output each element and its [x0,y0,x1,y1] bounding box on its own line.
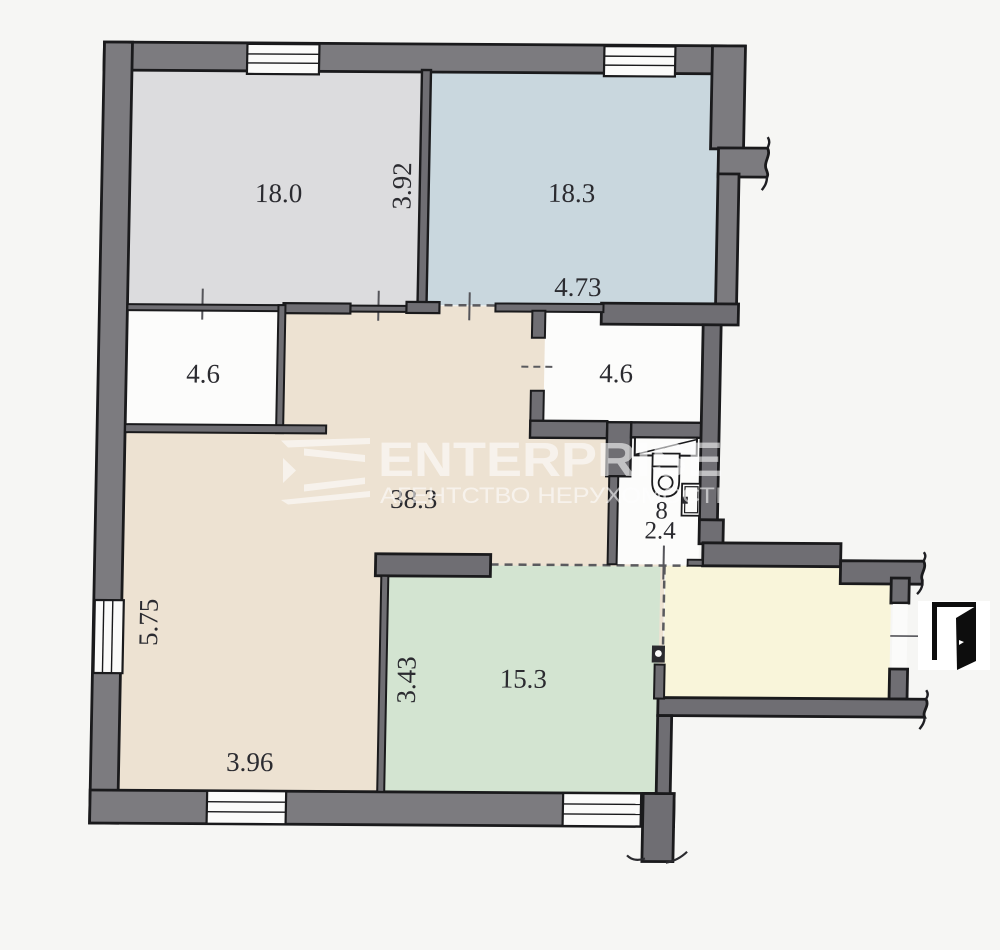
svg-text:4.6: 4.6 [599,358,633,388]
svg-text:18.0: 18.0 [255,178,303,208]
svg-text:18.3: 18.3 [548,178,596,208]
svg-text:4.73: 4.73 [554,272,602,302]
svg-text:3.92: 3.92 [386,162,417,209]
svg-text:3.96: 3.96 [226,747,274,777]
svg-text:3.43: 3.43 [391,656,422,703]
svg-text:5.75: 5.75 [133,599,164,646]
svg-text:ENTERPRISE: ENTERPRISE [378,434,723,487]
svg-text:АГЕНТСТВО НЕРУХОМОСТІ: АГЕНТСТВО НЕРУХОМОСТІ [380,483,722,508]
svg-text:15.3: 15.3 [499,664,547,694]
svg-text:2.4: 2.4 [644,517,676,544]
svg-text:4.6: 4.6 [186,359,220,389]
